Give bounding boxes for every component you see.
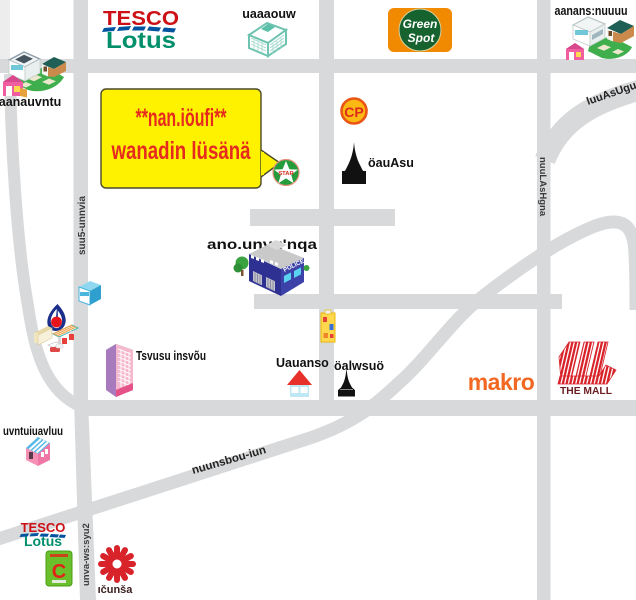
svg-text:öauAsu: öauAsu: [368, 156, 414, 170]
svg-text:makro: makro: [468, 369, 535, 395]
svg-text:CP: CP: [344, 104, 363, 120]
svg-text:Spot: Spot: [408, 31, 436, 45]
svg-text:**nan.iöufi**: **nan.iöufi**: [136, 104, 227, 132]
svg-text:öalwsuö: öalwsuö: [334, 359, 384, 373]
svg-text:C: C: [52, 561, 66, 583]
svg-text:unva-ws:syu2: unva-ws:syu2: [81, 523, 92, 586]
svg-text:Green: Green: [403, 17, 438, 31]
svg-text:Tsvusu insvõu: Tsvusu insvõu: [136, 349, 206, 363]
svg-text:Lotus: Lotus: [106, 27, 176, 53]
svg-text:THE MALL: THE MALL: [560, 385, 613, 397]
svg-text:uaaaouw: uaaaouw: [242, 7, 296, 21]
svg-text:wanadin lüsänä: wanadin lüsänä: [111, 137, 251, 165]
svg-text:nuuLAsHgna: nuuLAsHgna: [537, 157, 548, 217]
svg-text:Uauanso: Uauanso: [276, 356, 329, 370]
svg-text:aanans:nuuuu: aanans:nuuuu: [555, 4, 628, 18]
svg-text:aanauvntu: aanauvntu: [0, 95, 61, 109]
svg-text:Lotus: Lotus: [24, 533, 62, 549]
svg-text:STAR: STAR: [278, 171, 294, 177]
svg-text:ıčunša: ıčunša: [98, 584, 134, 596]
svg-text:suu5-unnvia: suu5-unnvia: [77, 196, 88, 255]
svg-text:uvntuiuavluu: uvntuiuavluu: [3, 426, 63, 438]
